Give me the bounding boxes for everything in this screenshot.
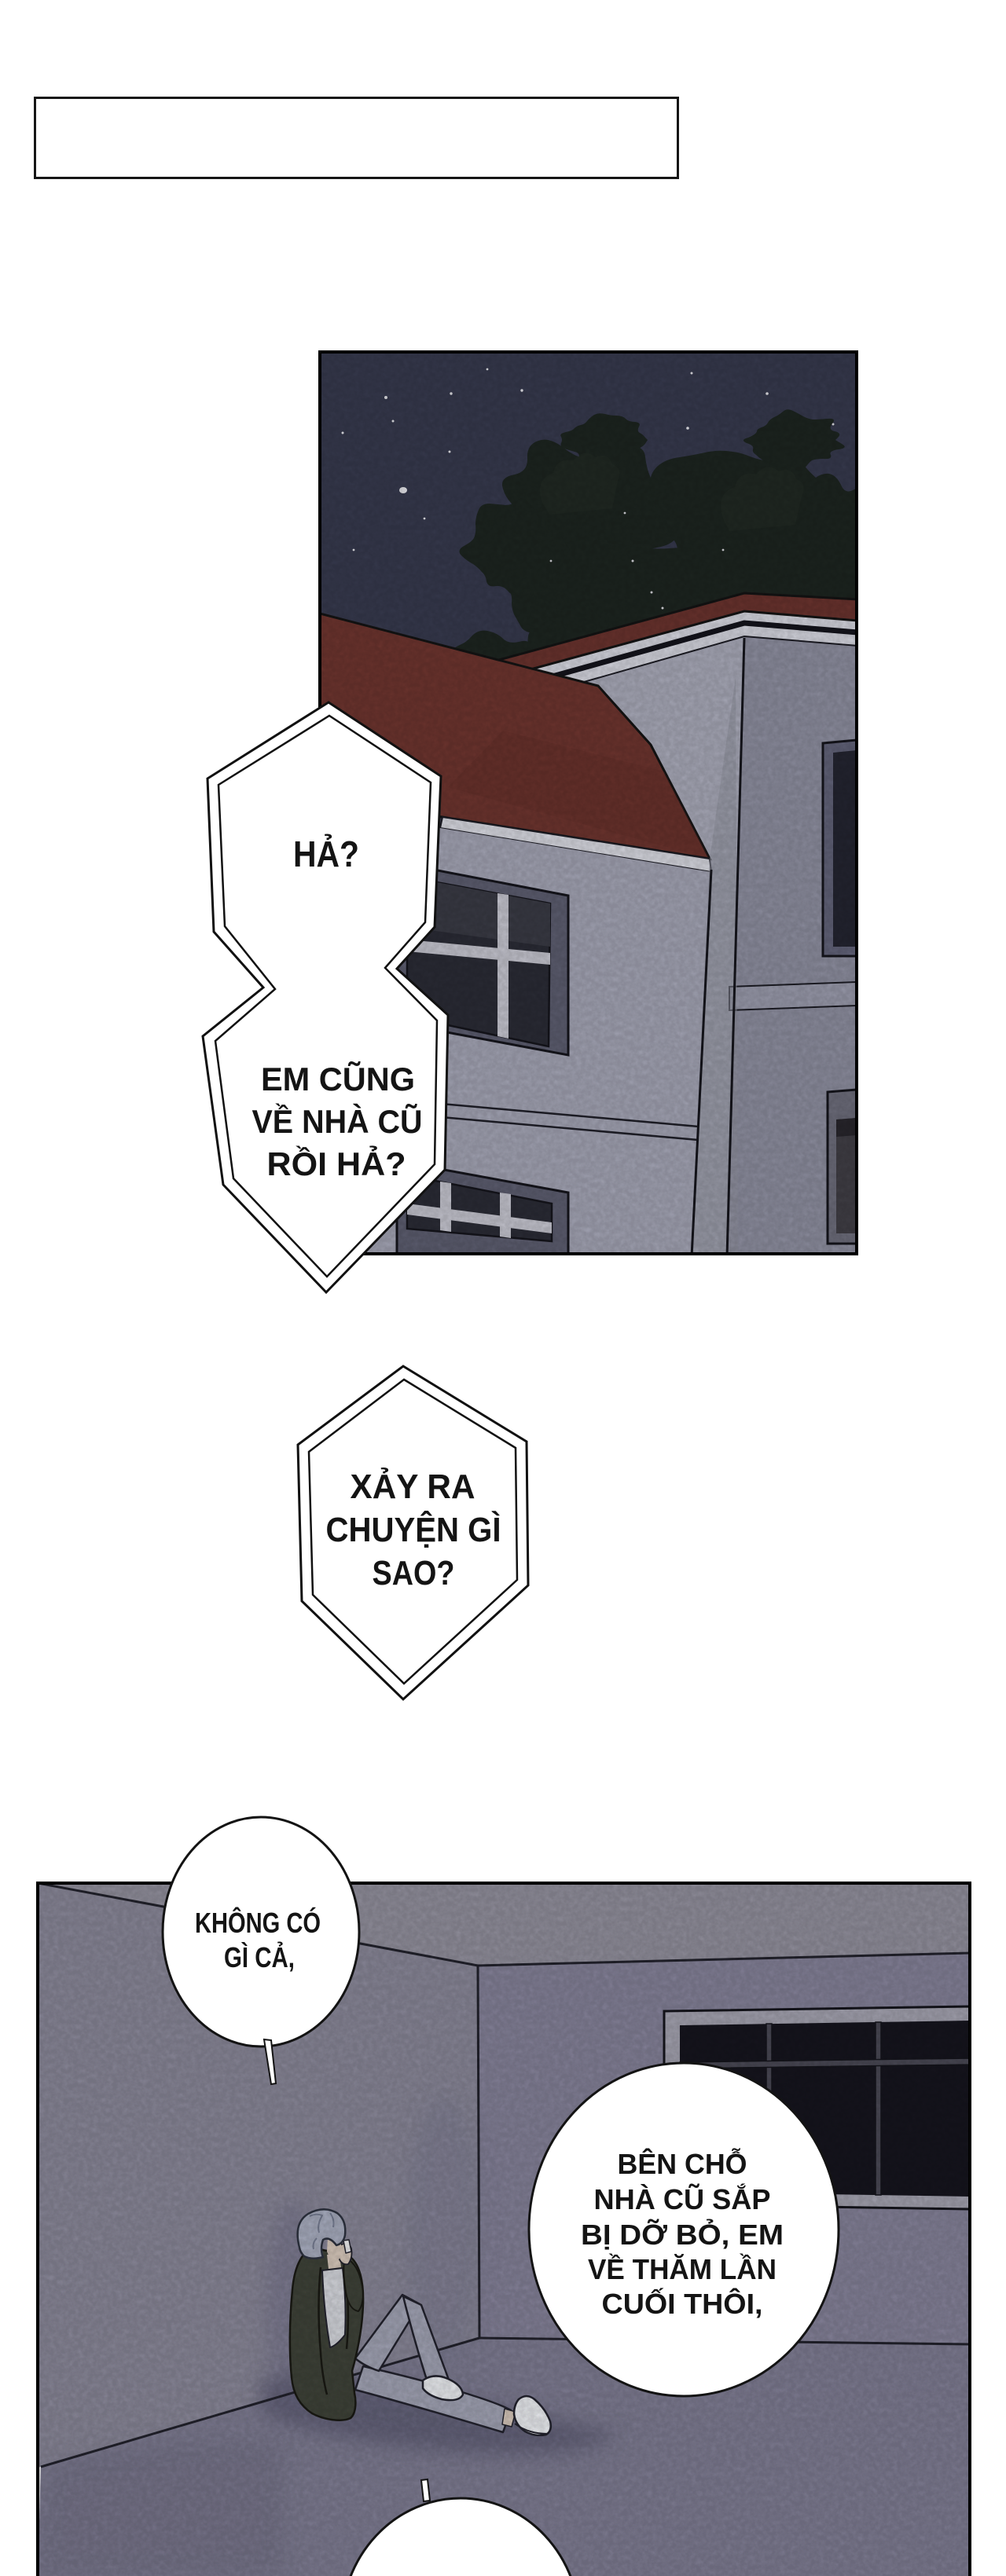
svg-text:RỒI HẢ?: RỒI HẢ? — [267, 1145, 406, 1182]
svg-text:HẢ?: HẢ? — [293, 834, 359, 874]
svg-text:GÌ CẢ,: GÌ CẢ, — [224, 1941, 295, 1973]
svg-text:NHÀ CŨ SẮP: NHÀ CŨ SẮP — [594, 2182, 771, 2215]
svg-text:SAO?: SAO? — [373, 1554, 455, 1592]
svg-text:BỊ DỠ BỎ, EM: BỊ DỠ BỎ, EM — [581, 2218, 784, 2251]
svg-text:KHÔNG CÓ: KHÔNG CÓ — [195, 1906, 321, 1939]
svg-text:EM CŨNG: EM CŨNG — [261, 1060, 415, 1097]
svg-text:BÊN CHỖ: BÊN CHỖ — [618, 2147, 747, 2180]
svg-text:XẢY RA: XẢY RA — [351, 1467, 475, 1506]
svg-text:CHUYỆN GÌ: CHUYỆN GÌ — [326, 1510, 501, 1549]
svg-text:CUỐI THÔI,: CUỐI THÔI, — [602, 2287, 763, 2320]
svg-text:VỀ NHÀ CŨ: VỀ NHÀ CŨ — [252, 1102, 423, 1140]
svg-text:VỀ THĂM LẦN: VỀ THĂM LẦN — [588, 2253, 777, 2285]
